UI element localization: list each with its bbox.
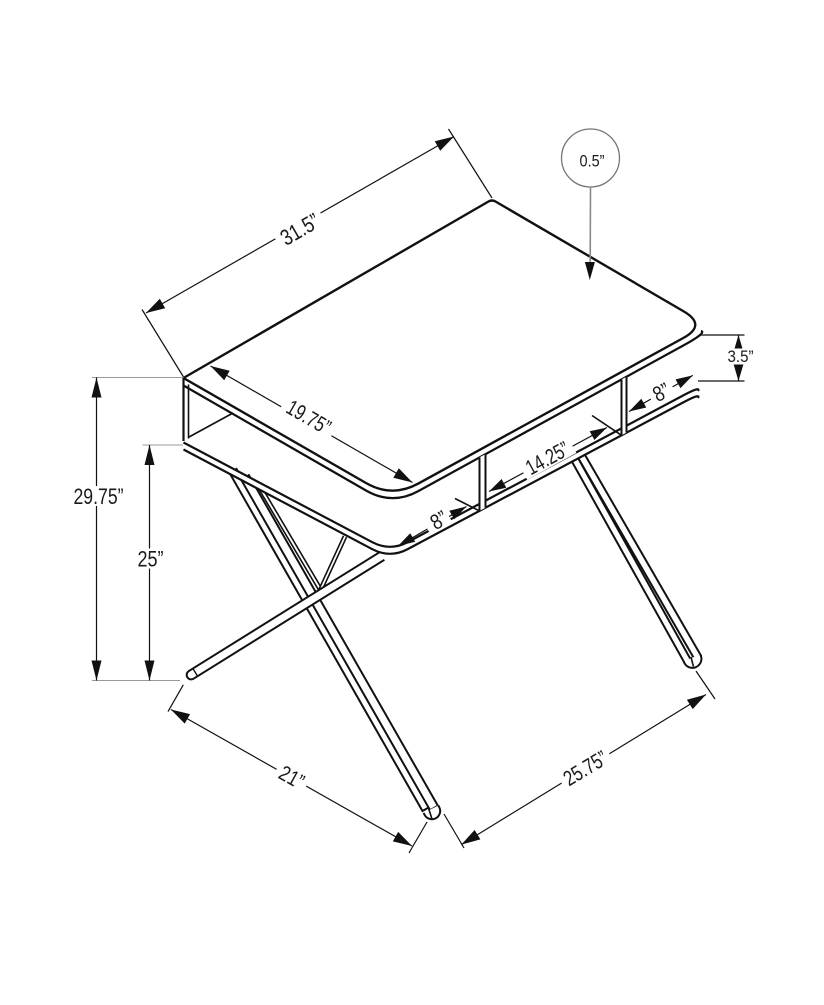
svg-text:3.5”: 3.5” bbox=[728, 347, 754, 366]
svg-text:25”: 25” bbox=[138, 547, 164, 572]
svg-text:29.75”: 29.75” bbox=[74, 484, 124, 509]
svg-text:0.5”: 0.5” bbox=[580, 152, 605, 171]
